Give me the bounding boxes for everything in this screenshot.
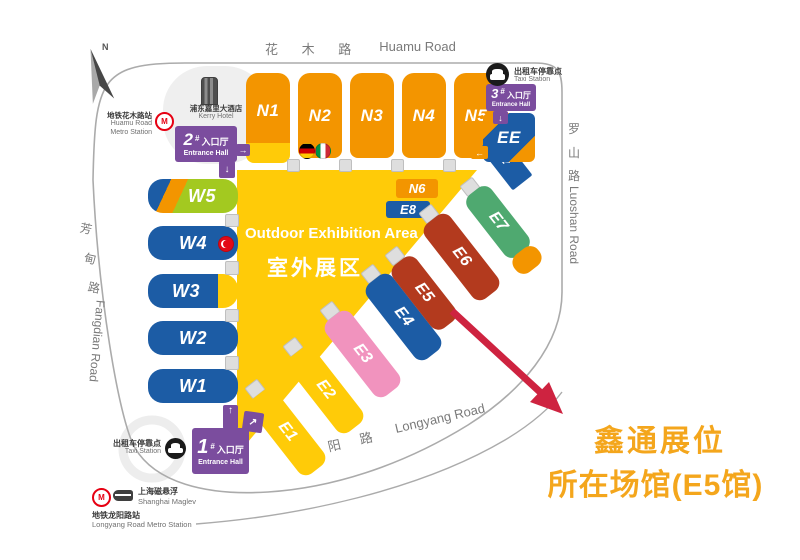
hall-connector bbox=[225, 261, 239, 275]
germany-flag-icon bbox=[299, 143, 315, 159]
corridor-left-arrow-icon bbox=[471, 146, 488, 159]
hall-n4-label: N4 bbox=[413, 106, 436, 126]
entrance-hall-3: 3# 入口厅 Entrance Hall bbox=[486, 84, 536, 111]
metro-logo-icon bbox=[92, 488, 111, 507]
entrance-2-hash: # bbox=[195, 135, 199, 143]
entrance-2-label-en: Entrance Hall bbox=[184, 150, 229, 157]
maglev-label-zh: 上海磁悬浮 bbox=[138, 486, 178, 497]
longyang-metro-label-en: Longyang Road Metro Station bbox=[92, 520, 192, 529]
entrance-hall-1: 1# 入口厅 Entrance Hall bbox=[192, 428, 249, 474]
taxi-top-label-en: Taxi Station bbox=[514, 76, 550, 83]
hall-e7-label: E7 bbox=[485, 208, 512, 235]
huamu-metro-label-en1: Huamu Road bbox=[90, 120, 152, 127]
taxi-icon bbox=[165, 438, 186, 459]
hall-n2-label: N2 bbox=[309, 106, 332, 126]
hall-w4-label: W4 bbox=[179, 233, 207, 254]
hall-e4-label: E4 bbox=[390, 303, 417, 330]
entrance-3-number: 3 bbox=[491, 87, 498, 100]
hall-w5-label: W5 bbox=[188, 186, 216, 207]
hall-e5-label: E5 bbox=[411, 279, 438, 306]
hall-n4: N4 bbox=[402, 73, 446, 158]
annotation-line1: 鑫通展位 bbox=[555, 416, 765, 460]
hotel-building-icon bbox=[201, 77, 218, 105]
hall-n3: N3 bbox=[350, 73, 394, 158]
entrance-hall-2: 2# 入口厅 Entrance Hall bbox=[175, 126, 237, 162]
huamu-road-zh: 花 木 路 bbox=[265, 39, 361, 58]
north-label: N bbox=[102, 42, 109, 52]
hall-connector bbox=[287, 159, 300, 172]
entrance-1-number: 1 bbox=[197, 437, 208, 457]
luoshan-road-en: Luoshan Road bbox=[567, 186, 581, 264]
luoshan-road-zh3: 路 bbox=[568, 167, 580, 184]
hall-e3-label: E3 bbox=[349, 340, 376, 367]
hall-w3-label: W3 bbox=[172, 281, 200, 302]
outdoor-area-label-en: Outdoor Exhibition Area bbox=[245, 225, 418, 242]
hall-w3: W3 bbox=[148, 274, 238, 308]
hall-e1-label: E1 bbox=[274, 418, 301, 445]
hall-w1-label: W1 bbox=[179, 376, 207, 397]
maglev-label-en: Shanghai Maglev bbox=[138, 497, 196, 506]
hall-e6-label: E6 bbox=[448, 243, 475, 270]
down-arrow-icon bbox=[219, 161, 235, 178]
hall-w4: W4 bbox=[148, 226, 238, 260]
entrance-3-hash: # bbox=[500, 88, 504, 96]
hall-connector bbox=[225, 356, 239, 370]
taxi-bottom-label-en: Taxi Station bbox=[99, 448, 161, 455]
turkey-flag-icon bbox=[218, 236, 234, 252]
hall-n6: N6 bbox=[396, 179, 438, 198]
annotation-line2: 所在场馆(E5馆) bbox=[518, 460, 793, 504]
entrance-2-number: 2 bbox=[184, 131, 193, 148]
entrance-1-hash: # bbox=[210, 443, 214, 451]
right-arrow-icon bbox=[236, 144, 250, 156]
sniec-venue-map: N 花 木 路 Huamu Road 罗 山 路 Luoshan Road 芳 … bbox=[0, 0, 800, 560]
hall-connector bbox=[391, 159, 404, 172]
north-arrow-icon bbox=[80, 46, 114, 104]
outdoor-area-label-zh: 室外展区 bbox=[267, 252, 363, 282]
luoshan-road-zh1: 罗 bbox=[568, 120, 580, 137]
entrance-1-label-zh: 入口厅 bbox=[217, 446, 244, 455]
italy-flag-icon bbox=[315, 143, 331, 159]
kerry-hotel-label-en: Kerry Hotel bbox=[163, 113, 269, 120]
hall-e8-label: E8 bbox=[400, 202, 416, 217]
metro-logo-icon bbox=[155, 112, 174, 131]
hall-connector bbox=[225, 309, 239, 322]
hall-e2-label: E2 bbox=[312, 376, 339, 403]
huamu-metro-label-en2: Metro Station bbox=[90, 129, 152, 136]
hall-n3-label: N3 bbox=[361, 106, 384, 126]
up-arrow-icon bbox=[223, 405, 238, 429]
luoshan-road-zh2: 山 bbox=[568, 144, 580, 161]
hall-n6-label: N6 bbox=[409, 181, 426, 196]
huamu-road-label: 花 木 路 Huamu Road bbox=[265, 39, 456, 58]
hall-w1: W1 bbox=[148, 369, 238, 403]
entrance-3-label-en: Entrance Hall bbox=[492, 102, 530, 108]
taxi-icon bbox=[486, 63, 509, 86]
down-arrow-icon bbox=[493, 111, 508, 124]
entrance-1-label-en: Entrance Hall bbox=[198, 459, 243, 466]
hall-connector bbox=[443, 159, 456, 172]
entrance-3-label-zh: 入口厅 bbox=[507, 92, 531, 100]
hall-w2: W2 bbox=[148, 321, 238, 355]
maglev-train-icon bbox=[113, 490, 133, 501]
hall-w2-label: W2 bbox=[179, 328, 207, 349]
hall-connector bbox=[339, 159, 352, 172]
hall-ee-label: EE bbox=[497, 128, 521, 148]
entrance-2-label-zh: 入口厅 bbox=[201, 138, 228, 147]
hall-w5: W5 bbox=[148, 179, 238, 213]
hall-ee: EE bbox=[483, 113, 535, 162]
hall-connector bbox=[225, 214, 239, 227]
huamu-road-en: Huamu Road bbox=[379, 39, 456, 58]
